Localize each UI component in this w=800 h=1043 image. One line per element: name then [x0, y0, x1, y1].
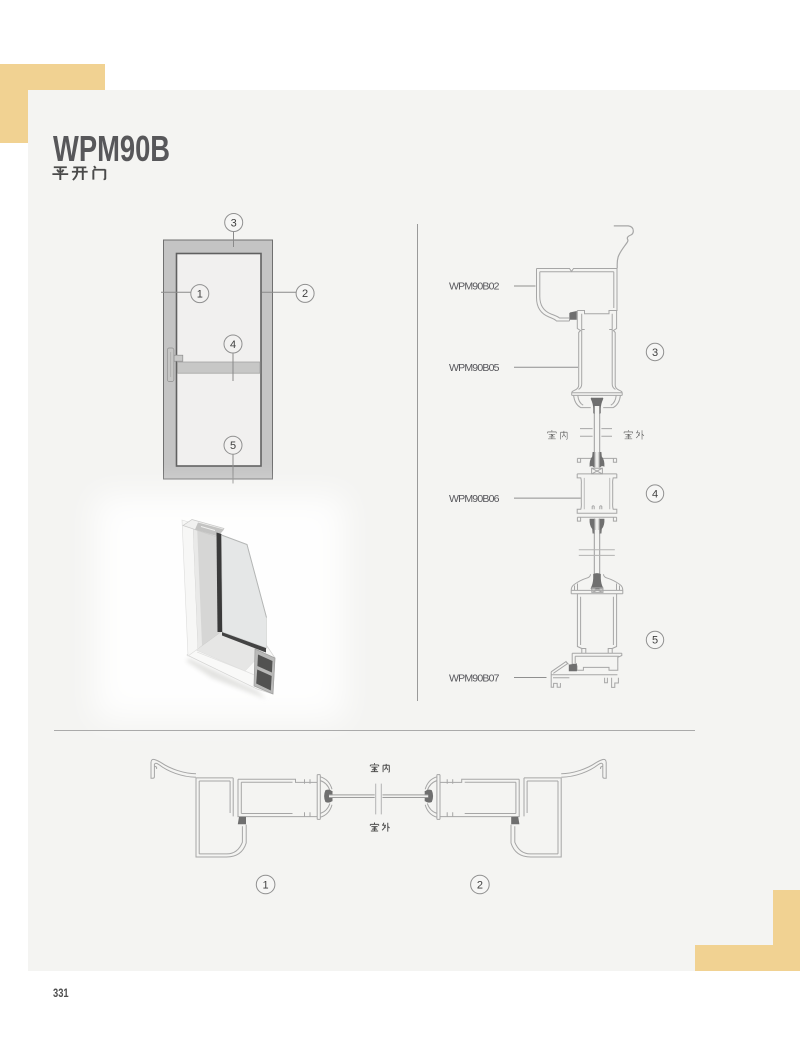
svg-text:1: 1 [197, 288, 203, 300]
svg-text:WPM90B07: WPM90B07 [449, 672, 500, 684]
svg-text:5: 5 [230, 440, 236, 452]
svg-text:4: 4 [652, 488, 658, 500]
svg-text:1: 1 [263, 879, 269, 891]
svg-text:4: 4 [230, 339, 236, 351]
svg-text:2: 2 [302, 288, 308, 300]
svg-text:2: 2 [477, 879, 483, 891]
svg-text:3: 3 [231, 217, 237, 229]
svg-text:5: 5 [652, 635, 658, 647]
svg-text:WPM90B05: WPM90B05 [449, 362, 500, 374]
svg-text:3: 3 [652, 347, 658, 359]
svg-text:WPM90B06: WPM90B06 [449, 493, 500, 505]
svg-text:WPM90B02: WPM90B02 [449, 281, 500, 293]
